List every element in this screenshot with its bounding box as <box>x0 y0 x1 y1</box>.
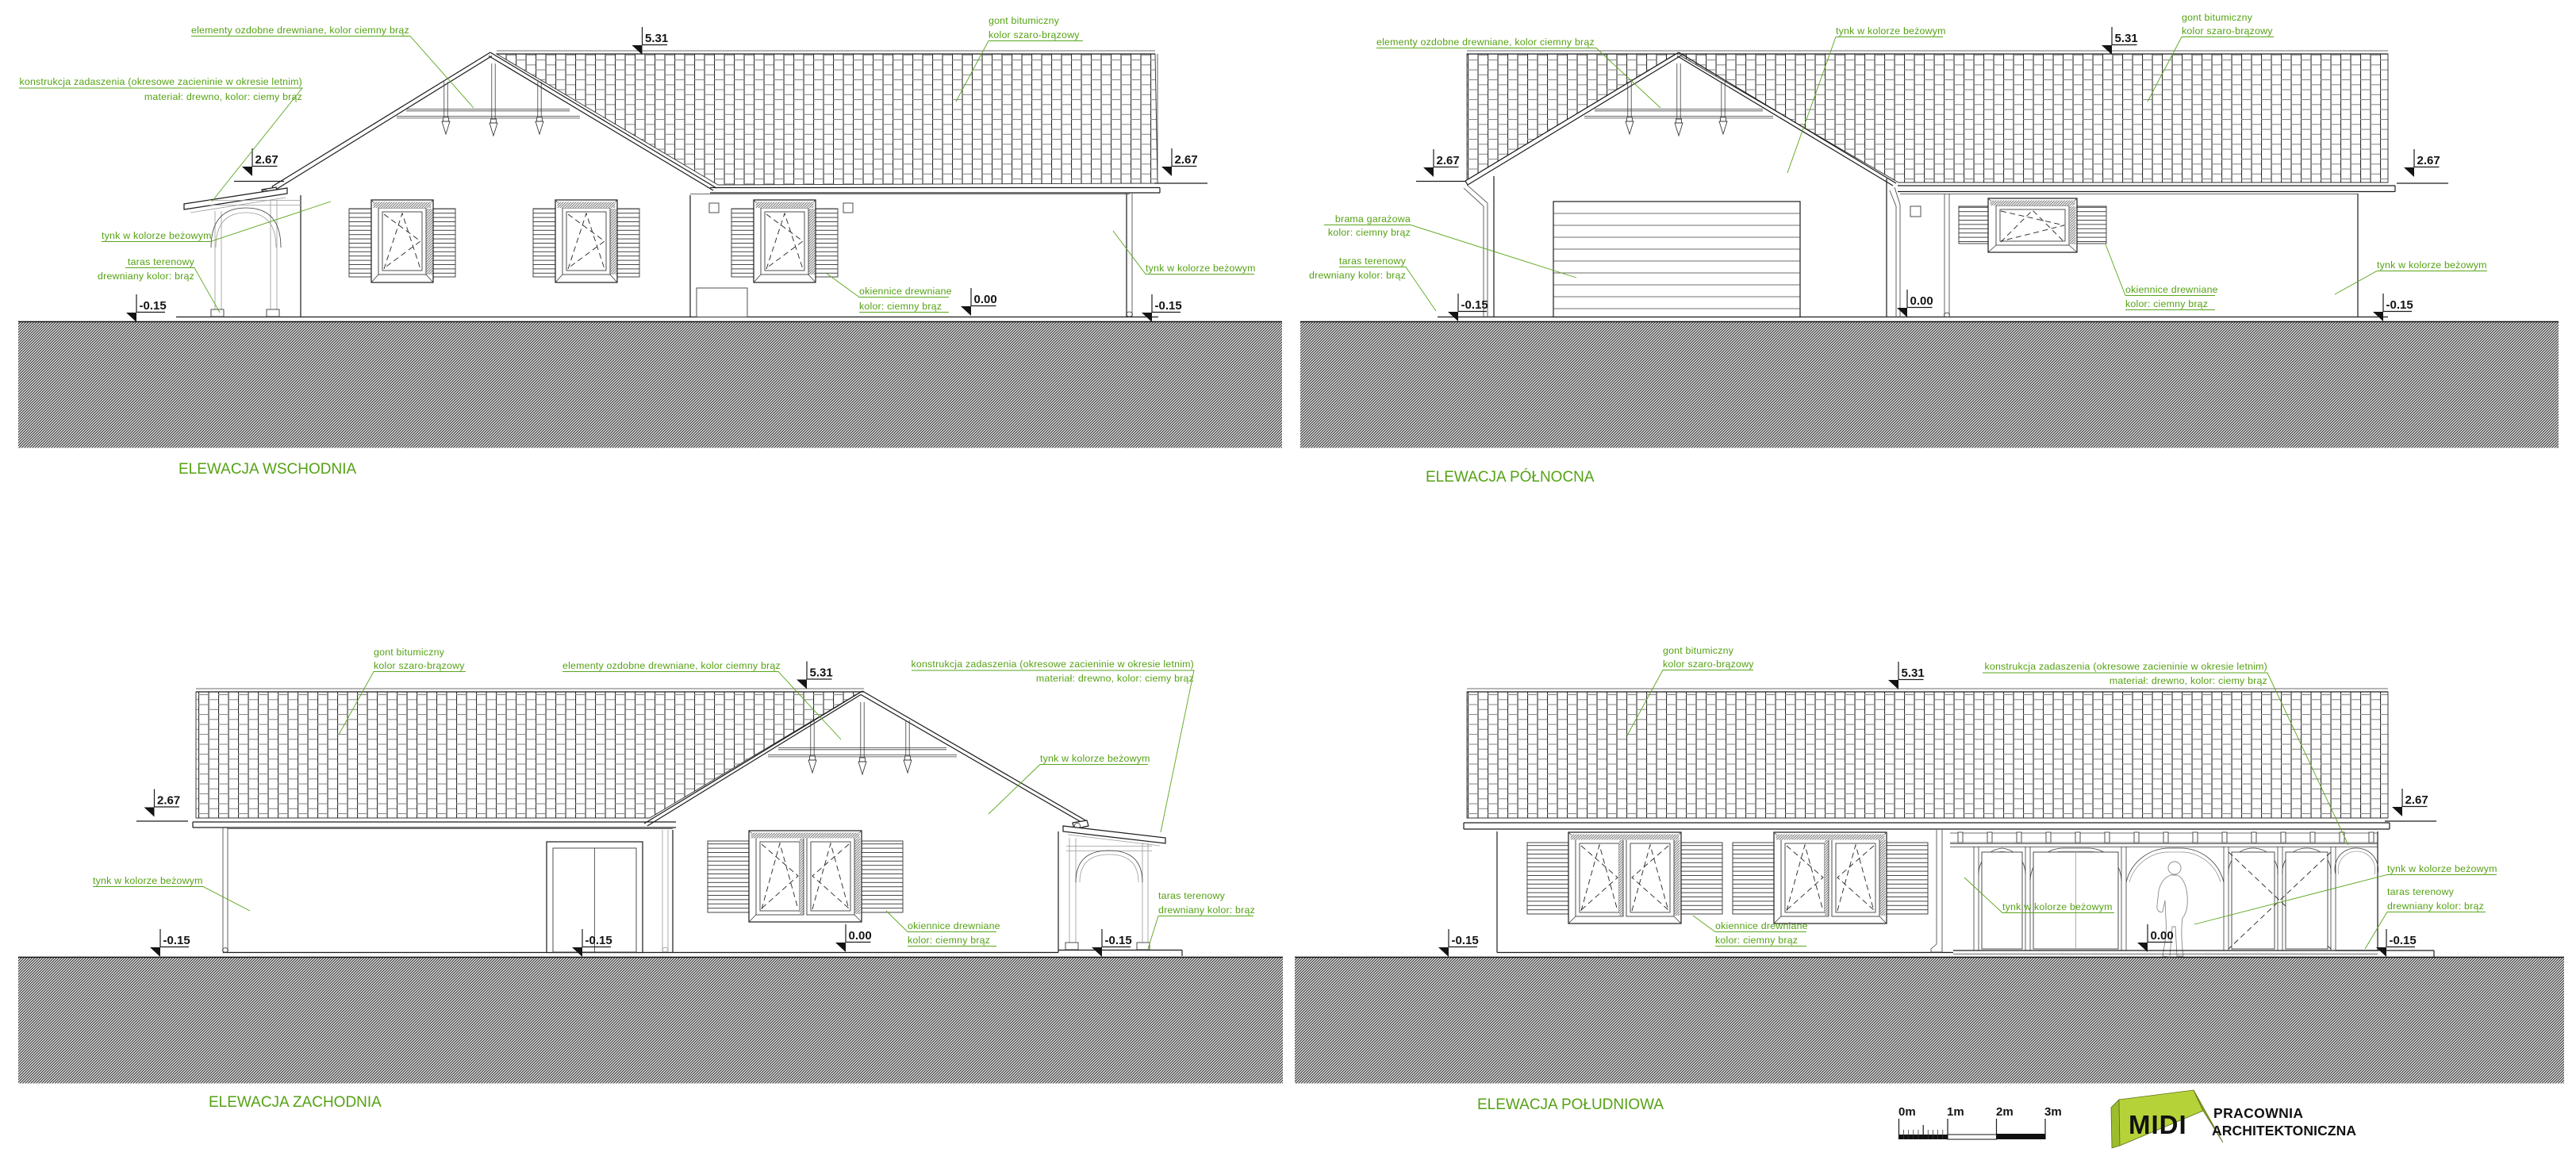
svg-text:okiennice drewniane: okiennice drewniane <box>1715 920 1808 931</box>
svg-text:materiał: drewno, kolor: cie: materiał: drewno, kolor: ciemy brąz <box>2110 675 2267 686</box>
svg-text:1m: 1m <box>1947 1105 1964 1119</box>
svg-text:ARCHITEKTONICZNA: ARCHITEKTONICZNA <box>2212 1123 2356 1139</box>
svg-text:taras terenowy: taras terenowy <box>1339 255 1407 267</box>
svg-text:ELEWACJA POŁUDNIOWA: ELEWACJA POŁUDNIOWA <box>1477 1096 1664 1113</box>
svg-text:brama garażowa: brama garażowa <box>1335 213 1411 225</box>
svg-text:taras terenowy: taras terenowy <box>1158 890 1226 901</box>
svg-text:elementy ozdobne drewniane, ko: elementy ozdobne drewniane, kolor ciemny… <box>1376 36 1595 48</box>
svg-text:kolor szaro-brązowy: kolor szaro-brązowy <box>989 29 1080 40</box>
svg-text:0.00: 0.00 <box>974 293 997 306</box>
svg-text:tynk w kolorze beżowym: tynk w kolorze beżowym <box>2387 863 2497 874</box>
svg-text:MIDI: MIDI <box>2129 1110 2187 1139</box>
svg-text:drewniany kolor: brąz: drewniany kolor: brąz <box>1158 904 1255 916</box>
svg-text:2m: 2m <box>1996 1105 2014 1119</box>
svg-text:kolor: ciemny brąz: kolor: ciemny brąz <box>908 935 990 946</box>
svg-text:drewniany kolor: brąz: drewniany kolor: brąz <box>2387 900 2484 912</box>
svg-text:ELEWACJA ZACHODNIA: ELEWACJA ZACHODNIA <box>209 1094 382 1111</box>
svg-text:okiennice drewniane: okiennice drewniane <box>2125 284 2218 295</box>
svg-text:gont bitumiczny: gont bitumiczny <box>374 647 445 658</box>
svg-text:tynk w kolorze beżowym: tynk w kolorze beżowym <box>2002 901 2113 912</box>
svg-text:ELEWACJA WSCHODNIA: ELEWACJA WSCHODNIA <box>179 461 356 478</box>
svg-text:PRACOWNIA: PRACOWNIA <box>2213 1105 2303 1121</box>
svg-text:2.67: 2.67 <box>255 153 278 167</box>
svg-text:-0.15: -0.15 <box>2390 934 2417 947</box>
svg-text:kolor: ciemny brąz: kolor: ciemny brąz <box>1328 227 1411 238</box>
svg-text:tynk w kolorze beżowym: tynk w kolorze beżowym <box>1146 263 1256 274</box>
svg-text:elementy ozdobne drewniane, ko: elementy ozdobne drewniane, kolor ciemny… <box>191 25 409 36</box>
svg-text:gont bitumiczny: gont bitumiczny <box>1663 645 1734 656</box>
svg-text:0.00: 0.00 <box>1910 294 1933 308</box>
svg-text:-0.15: -0.15 <box>1155 299 1182 313</box>
svg-text:konstrukcja zadaszenia (okreso: konstrukcja zadaszenia (okresowe zacieni… <box>19 76 302 87</box>
svg-text:0.00: 0.00 <box>849 929 872 943</box>
svg-text:0m: 0m <box>1898 1105 1916 1119</box>
svg-text:materiał: drewno, kolor: cie: materiał: drewno, kolor: ciemy brąz <box>144 91 302 102</box>
svg-text:ELEWACJA PÓŁNOCNA: ELEWACJA PÓŁNOCNA <box>1426 468 1595 486</box>
svg-text:tynk w kolorze beżowym: tynk w kolorze beżowym <box>2377 259 2487 271</box>
svg-text:kolor: ciemny brąz: kolor: ciemny brąz <box>2125 298 2208 309</box>
svg-text:drewniany kolor: brąz: drewniany kolor: brąz <box>1309 270 1406 281</box>
svg-text:-0.15: -0.15 <box>2386 298 2413 312</box>
svg-text:kolor: ciemny brąz: kolor: ciemny brąz <box>859 301 942 312</box>
svg-text:-0.15: -0.15 <box>1452 934 1479 947</box>
svg-text:tynk w kolorze beżowym: tynk w kolorze beżowym <box>102 230 212 241</box>
svg-text:2.67: 2.67 <box>1175 153 1198 167</box>
svg-text:5.31: 5.31 <box>810 666 833 680</box>
svg-text:2.67: 2.67 <box>157 794 180 808</box>
svg-text:kolor: ciemny brąz: kolor: ciemny brąz <box>1715 935 1798 946</box>
svg-text:tynk w kolorze beżowym: tynk w kolorze beżowym <box>93 875 203 886</box>
svg-text:taras terenowy: taras terenowy <box>128 256 195 267</box>
svg-text:gont bitumiczny: gont bitumiczny <box>2182 12 2253 23</box>
svg-text:tynk w kolorze beżowym: tynk w kolorze beżowym <box>1040 753 1150 764</box>
svg-text:-0.15: -0.15 <box>1461 298 1488 312</box>
svg-text:2.67: 2.67 <box>2405 793 2428 807</box>
svg-text:5.31: 5.31 <box>1902 666 1925 680</box>
svg-text:kolor szaro-brązowy: kolor szaro-brązowy <box>1663 659 1754 670</box>
svg-text:5.31: 5.31 <box>2115 32 2138 45</box>
svg-text:5.31: 5.31 <box>645 32 668 45</box>
svg-text:konstrukcja zadaszenia (okreso: konstrukcja zadaszenia (okresowe zacieni… <box>911 659 1194 670</box>
svg-text:3m: 3m <box>2044 1105 2062 1119</box>
svg-text:-0.15: -0.15 <box>140 299 167 313</box>
svg-text:konstrukcja zadaszenia (okreso: konstrukcja zadaszenia (okresowe zacieni… <box>1984 661 2267 672</box>
svg-text:-0.15: -0.15 <box>585 934 612 947</box>
svg-text:gont bitumiczny: gont bitumiczny <box>989 15 1060 26</box>
svg-text:0.00: 0.00 <box>2151 929 2174 943</box>
svg-text:drewniany kolor: brąz: drewniany kolor: brąz <box>98 271 194 282</box>
svg-text:-0.15: -0.15 <box>163 934 190 947</box>
svg-text:2.67: 2.67 <box>1437 154 1460 167</box>
svg-text:elementy ozdobne drewniane, ko: elementy ozdobne drewniane, kolor ciemny… <box>562 660 781 671</box>
svg-text:kolor szaro-brązowy: kolor szaro-brązowy <box>2182 25 2273 36</box>
svg-text:-0.15: -0.15 <box>1105 934 1132 947</box>
svg-text:materiał: drewno, kolor: cie: materiał: drewno, kolor: ciemy brąz <box>1036 673 1194 684</box>
svg-text:kolor szaro-brązowy: kolor szaro-brązowy <box>374 660 465 671</box>
svg-text:okiennice drewniane: okiennice drewniane <box>908 920 1000 931</box>
svg-text:taras terenowy: taras terenowy <box>2387 886 2455 897</box>
svg-text:2.67: 2.67 <box>2417 154 2440 167</box>
svg-text:tynk w kolorze beżowym: tynk w kolorze beżowym <box>1836 25 1946 36</box>
svg-text:okiennice drewniane: okiennice drewniane <box>859 286 952 297</box>
